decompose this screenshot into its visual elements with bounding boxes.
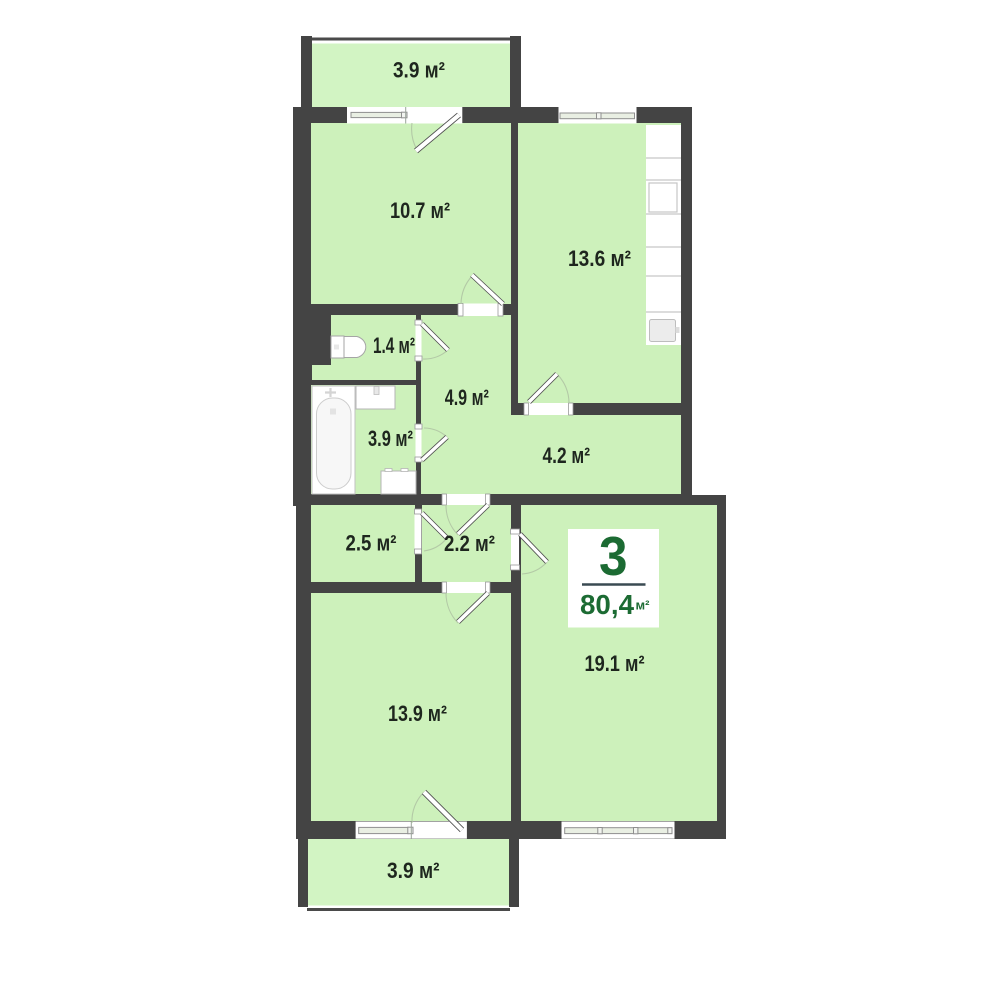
- svg-text:80,4: 80,4: [580, 589, 635, 620]
- svg-text:10.7 м²: 10.7 м²: [390, 198, 450, 223]
- svg-text:3.9 м²: 3.9 м²: [393, 58, 445, 83]
- svg-text:3.9 м²: 3.9 м²: [368, 426, 413, 451]
- svg-text:3.9 м²: 3.9 м²: [387, 858, 440, 883]
- svg-text:13.6 м²: 13.6 м²: [568, 246, 631, 271]
- svg-text:2.2 м²: 2.2 м²: [444, 531, 495, 556]
- svg-text:1.4 м²: 1.4 м²: [373, 333, 415, 358]
- svg-text:4.2 м²: 4.2 м²: [543, 443, 591, 468]
- svg-text:19.1 м²: 19.1 м²: [585, 651, 645, 676]
- svg-text:13.9 м²: 13.9 м²: [388, 701, 447, 726]
- svg-text:4.9 м²: 4.9 м²: [445, 385, 489, 410]
- svg-text:3: 3: [599, 525, 628, 587]
- svg-text:2.5 м²: 2.5 м²: [346, 531, 397, 556]
- svg-text:м²: м²: [636, 598, 651, 613]
